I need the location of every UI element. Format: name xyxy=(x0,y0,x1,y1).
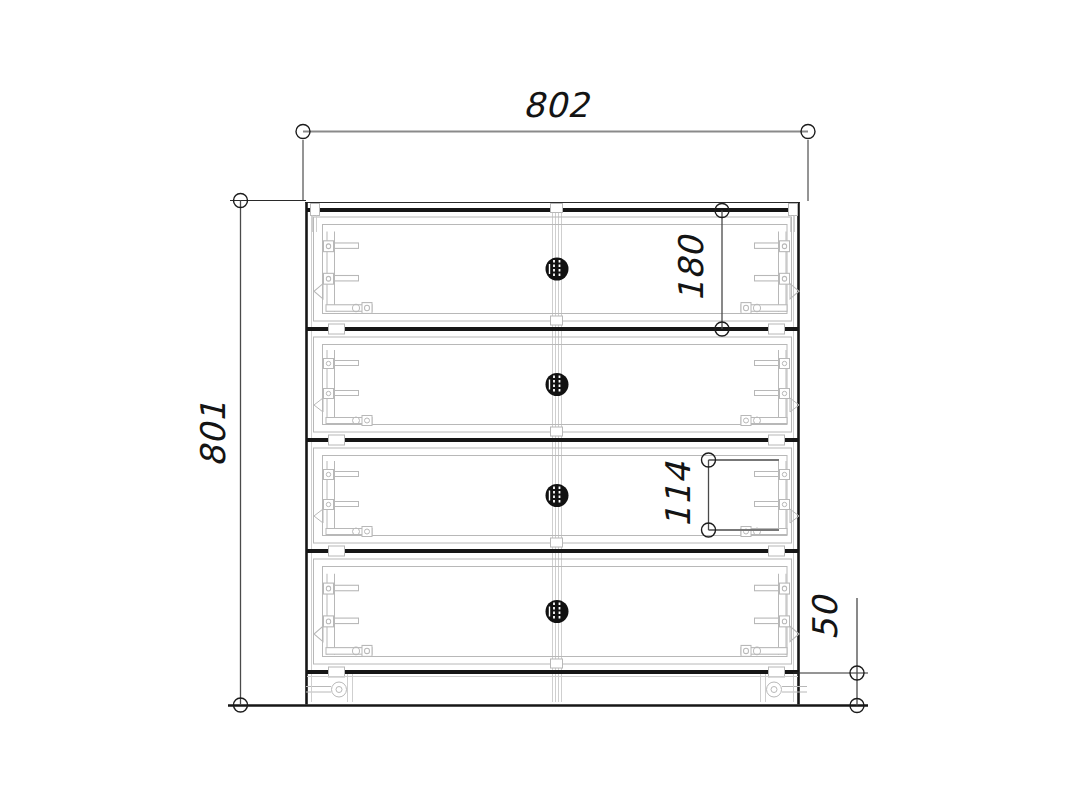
dimension-width-label: 802 xyxy=(523,85,591,125)
dimension-height-label: 801 xyxy=(193,401,233,467)
cam-lock-icon xyxy=(546,258,569,281)
cam-lock-icon xyxy=(546,484,569,507)
technical-drawing-page: 802 801 180 114 50 xyxy=(0,0,1067,800)
dimension-drawer-front-label: 180 xyxy=(671,233,711,302)
cam-lock-icon xyxy=(546,600,569,623)
dimension-plinth-label: 50 xyxy=(805,593,845,640)
technical-drawing-canvas: 802 801 180 114 50 xyxy=(0,0,1067,800)
cam-lock-icon xyxy=(546,373,569,396)
dimension-drawer-box-label: 114 xyxy=(658,461,698,528)
